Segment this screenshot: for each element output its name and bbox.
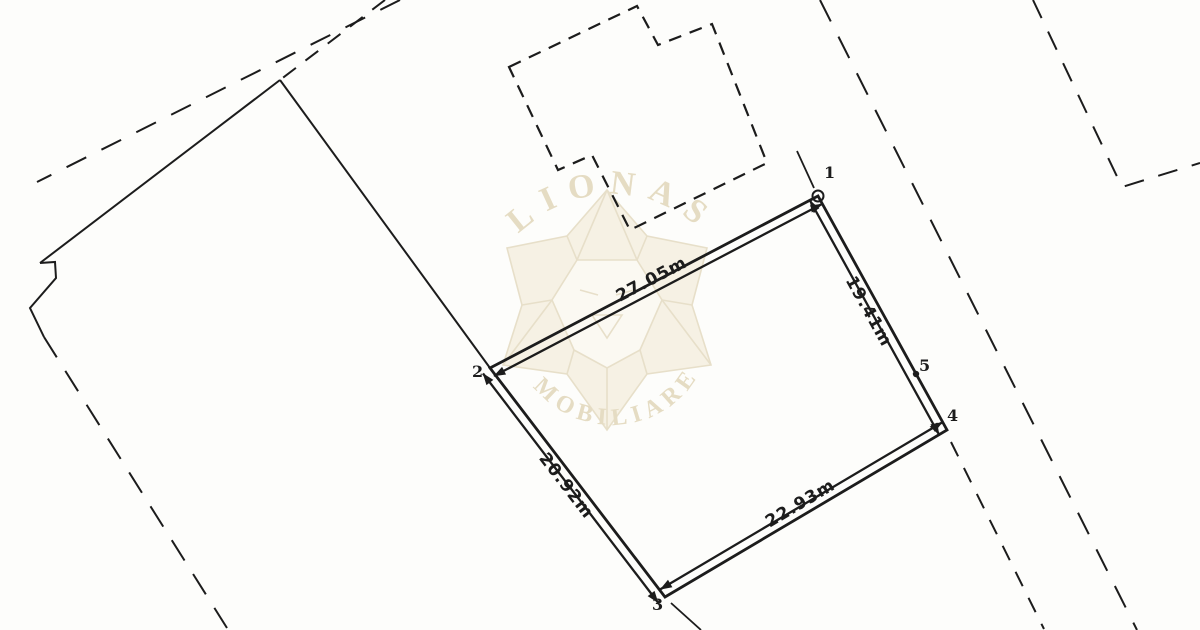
cadastral-plan-page: LIONAS IMOBILIARE 27.05m bbox=[0, 0, 1200, 630]
point-label-4: 4 bbox=[947, 406, 958, 425]
point-label-2: 2 bbox=[472, 362, 483, 381]
point-label-3: 3 bbox=[652, 595, 663, 614]
point-label-1: 1 bbox=[824, 163, 835, 182]
cadastral-plan-svg: LIONAS IMOBILIARE 27.05m bbox=[0, 0, 1200, 630]
point-label-5: 5 bbox=[919, 356, 930, 375]
